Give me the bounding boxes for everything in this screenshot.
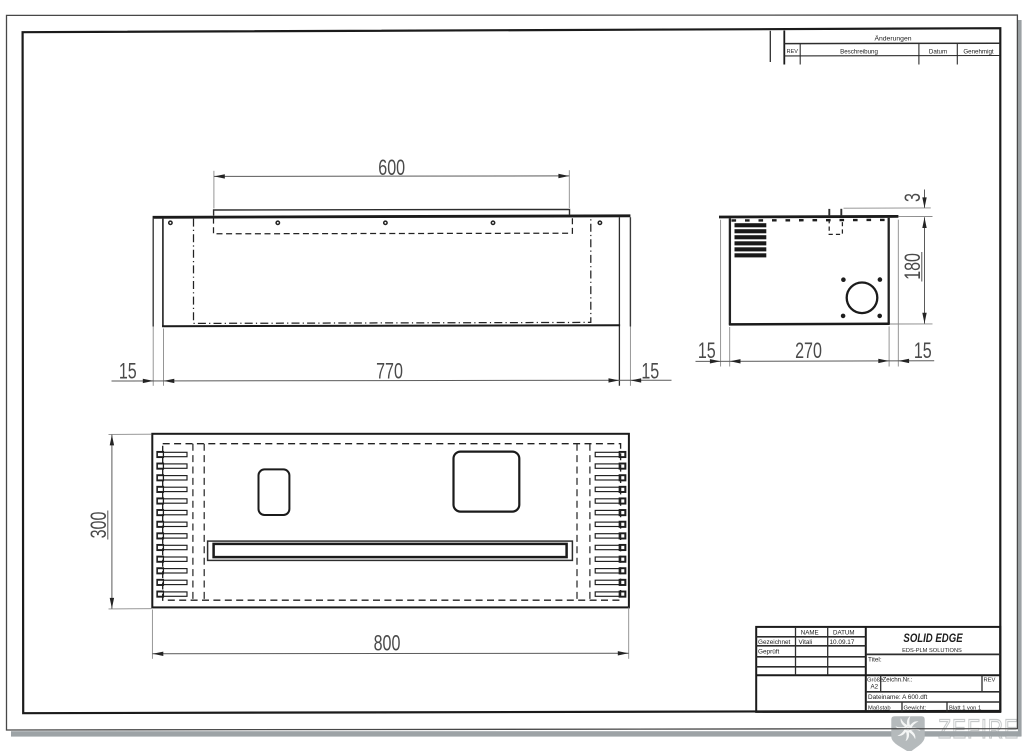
svg-text:A2: A2 <box>871 684 879 691</box>
svg-text:SOLID EDGE: SOLID EDGE <box>903 632 963 645</box>
svg-text:EDS-PLM SOLUTIONS: EDS-PLM SOLUTIONS <box>902 648 962 654</box>
svg-text:Maßstab: Maßstab <box>868 705 891 711</box>
svg-text:15: 15 <box>914 340 932 364</box>
svg-text:Größe: Größe <box>867 677 883 683</box>
svg-text:600: 600 <box>378 157 405 181</box>
svg-text:REV: REV <box>787 49 799 55</box>
svg-text:800: 800 <box>374 632 401 656</box>
svg-text:10.09.17: 10.09.17 <box>830 639 855 646</box>
svg-text:Genehmigt: Genehmigt <box>963 48 994 55</box>
svg-text:Vitali: Vitali <box>799 639 813 646</box>
svg-text:3: 3 <box>902 193 926 202</box>
svg-text:15: 15 <box>698 340 716 364</box>
svg-text:ZEFIRE: ZEFIRE <box>938 714 1019 744</box>
svg-text:15: 15 <box>641 360 659 384</box>
svg-text:15: 15 <box>119 360 137 384</box>
svg-text:Dateiname: A 600.dft: Dateiname: A 600.dft <box>868 694 928 701</box>
svg-text:Titel:: Titel: <box>868 657 882 664</box>
svg-text:NAME: NAME <box>801 630 819 637</box>
svg-text:Zeichn.Nr.:: Zeichn.Nr.: <box>883 676 913 683</box>
svg-text:Änderungen: Änderungen <box>874 34 911 42</box>
svg-text:REV: REV <box>984 677 996 683</box>
svg-text:Blatt 1 von 1: Blatt 1 von 1 <box>949 705 981 711</box>
svg-text:Gezeichnet: Gezeichnet <box>758 639 791 646</box>
svg-text:Beschreibung: Beschreibung <box>840 48 878 55</box>
svg-text:770: 770 <box>376 360 403 384</box>
svg-text:270: 270 <box>795 340 822 364</box>
svg-text:Datum: Datum <box>929 48 947 55</box>
svg-text:Geprüft: Geprüft <box>758 649 780 656</box>
svg-text:DATUM: DATUM <box>833 630 855 637</box>
svg-text:Gewicht:: Gewicht: <box>904 705 927 711</box>
